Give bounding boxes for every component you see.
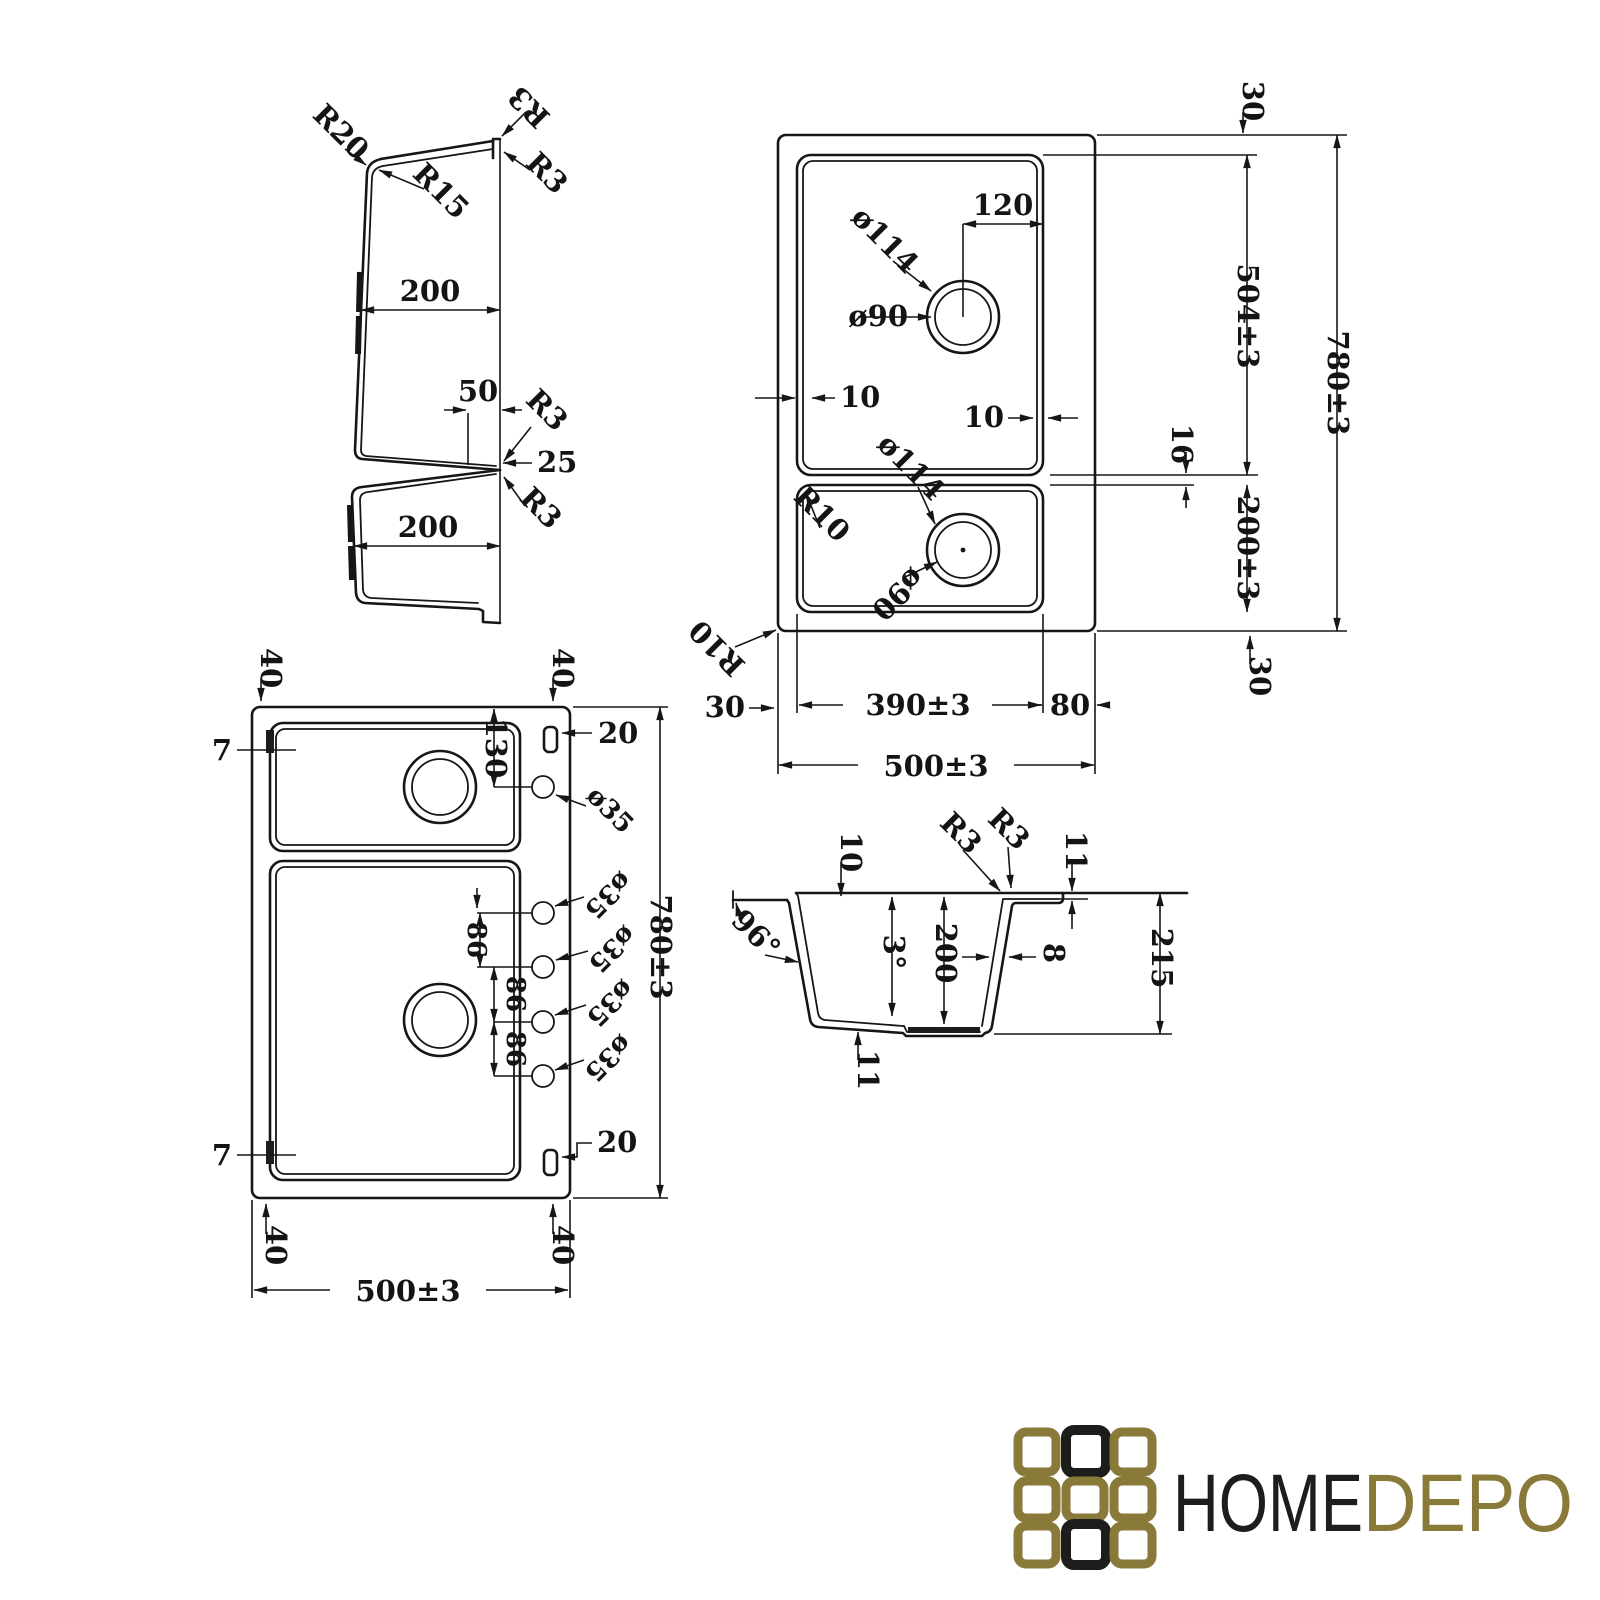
dim-overall-length-label: 780±3 [1321, 330, 1355, 435]
dim-first-hole-offset-label: 130 [479, 718, 513, 779]
clip-tab [351, 546, 352, 580]
dim-overall-depth-label: 215 [1145, 928, 1179, 989]
clip-tab [359, 272, 360, 312]
dim-overall-width-label: 500±3 [883, 749, 988, 783]
dim-divider-thickness-label: 16 [1165, 424, 1199, 464]
technical-drawing-page: R20 R3 R15 R3 200 50 R3 25 R3 200 [0, 0, 1600, 1600]
plan-view: 30 504±3 780±3 120 ø114 ø90 10 10 16 200… [682, 81, 1355, 783]
dim-r3-step-top-label: R3 [501, 79, 556, 134]
dim-right-deck-label: 80 [1050, 688, 1090, 722]
dim-overall-width-label: 500±3 [355, 1274, 460, 1308]
faucet-hole-5 [532, 1065, 554, 1087]
dim-bowl-width-label: 390±3 [865, 688, 970, 722]
dim-spacing1-label: 86 [461, 922, 491, 958]
dim-corner-br-label: 40 [546, 1225, 580, 1265]
drilling-plan-view: 40 40 7 20 130 ø35 ø35 ø35 ø35 ø35 86 86… [212, 648, 678, 1308]
logo-square [1066, 1481, 1104, 1518]
dim-ledge-depth-label: 10 [834, 832, 868, 872]
profile-section-view: R20 R3 R15 R3 200 50 R3 25 R3 200 [306, 79, 577, 623]
dim-wall-angle-label: 96° [725, 903, 788, 966]
overflow-slot-bottom [544, 1150, 557, 1175]
dim-hole3-label: ø35 [582, 919, 641, 978]
dim-outer-corner-label: R10 [682, 613, 752, 683]
drain-recess [908, 1027, 980, 1033]
dim-clip-tab-bottom-label: 7 [212, 1138, 232, 1172]
logo-text-secondary: DEPO [1363, 1458, 1573, 1549]
dim-bowl-depth-label: 200 [929, 923, 963, 984]
drilling-dimensions: 40 40 7 20 130 ø35 ø35 ø35 ø35 ø35 86 86… [212, 648, 678, 1308]
plan-geometry [778, 135, 1095, 631]
large-bowl [270, 861, 520, 1180]
dim-corner-tr-label: 40 [546, 648, 580, 688]
dim-clip-tab-top-label: 7 [212, 733, 232, 767]
logo-grid-icon [1018, 1430, 1152, 1565]
dim-bottom-left-rim-label: 30 [705, 690, 745, 724]
logo-square [1114, 1526, 1152, 1564]
sink-technical-drawing: R20 R3 R15 R3 200 50 R3 25 R3 200 [0, 0, 1600, 1600]
dim-divider-depth-label: 25 [537, 445, 577, 479]
dim-hole2-label: ø35 [578, 865, 637, 924]
faucet-hole-4 [532, 1011, 554, 1033]
dim-spacing2-label: 86 [500, 976, 530, 1012]
dim-hole5-label: ø35 [578, 1028, 637, 1087]
dim-r3-divider-lower-label: R3 [513, 480, 568, 535]
large-bowl-drain [404, 984, 476, 1056]
small-bowl-drain [404, 751, 476, 823]
dim-corner-bl-label: 40 [259, 1225, 293, 1265]
dim-bottom-drop-label: 11 [851, 1050, 885, 1090]
dim-spacing3-label: 86 [500, 1031, 530, 1067]
dim-upper-bowl-width-label: 200 [400, 274, 461, 308]
drilling-geometry [252, 707, 570, 1198]
logo-square [1114, 1432, 1152, 1472]
logo-square [1114, 1481, 1152, 1518]
logo-square [1018, 1526, 1056, 1564]
dim-right-rim-label: 10 [964, 400, 1004, 434]
dim-r20-label: R20 [306, 97, 376, 167]
dim-slot-bottom-label: 20 [597, 1125, 637, 1159]
faucet-hole-2 [532, 902, 554, 924]
logo-text-primary: HOME [1173, 1458, 1363, 1549]
dim-lower-bowl-length-label: 200±3 [1231, 495, 1265, 600]
faucet-hole-3 [532, 956, 554, 978]
cross-section-view: 10 96° 3° 200 R3 R3 11 8 215 11 [725, 801, 1187, 1090]
logo-square [1066, 1524, 1106, 1565]
dim-lip-height-label: 11 [1059, 831, 1093, 871]
dim-r3-outer-label: R3 [981, 801, 1036, 856]
dim-lower-bowl-width-label: 200 [398, 510, 459, 544]
dim-drain-top-inner-label: ø90 [848, 299, 908, 333]
clip-tab-bottom [266, 1141, 274, 1164]
section-dimensions: 10 96° 3° 200 R3 R3 11 8 215 11 [725, 801, 1179, 1090]
dim-bottom-rim-label: 30 [1243, 656, 1277, 696]
dim-slot-top-label: 20 [598, 716, 638, 750]
dim-drain-top-outer-label: ø114 [845, 200, 926, 281]
dim-top-rim-label: 30 [1236, 81, 1270, 121]
dim-r3-step-side-label: R3 [519, 145, 574, 200]
dim-upper-bowl-length-label: 504±3 [1231, 263, 1265, 368]
plan-dimensions: 30 504±3 780±3 120 ø114 ø90 10 10 16 200… [682, 81, 1355, 783]
dim-hole4-label: ø35 [580, 973, 639, 1032]
dim-bottom-slope-label: 3° [877, 935, 911, 970]
dim-divider-width-label: 50 [458, 374, 498, 408]
dim-overall-length-label: 780±3 [644, 894, 678, 999]
dim-corner-tl-label: 40 [254, 648, 288, 688]
dim-drain-offset-label: 120 [973, 188, 1034, 222]
dim-wall-thickness-label: 8 [1037, 943, 1071, 963]
logo-square [1018, 1432, 1056, 1472]
faucet-hole-1 [532, 776, 554, 798]
logo-square [1018, 1481, 1056, 1518]
dim-r15-label: R15 [406, 156, 476, 226]
dim-r3-divider-upper-label: R3 [519, 382, 574, 437]
logo-square [1066, 1430, 1106, 1473]
dim-drain-bottom-inner-label: ø90 [865, 561, 931, 627]
dim-drain-bottom-outer-label: ø114 [871, 427, 952, 508]
sink-outline [252, 707, 570, 1198]
clip-tab [358, 316, 359, 354]
dim-left-rim-label: 10 [840, 380, 880, 414]
dim-r3-inner-label: R3 [933, 805, 988, 860]
clip-tab [350, 505, 351, 542]
overflow-slot-top [544, 727, 557, 752]
dim-hole1-label: ø35 [580, 781, 639, 840]
brand-logo: HOME DEPO [1018, 1430, 1573, 1565]
